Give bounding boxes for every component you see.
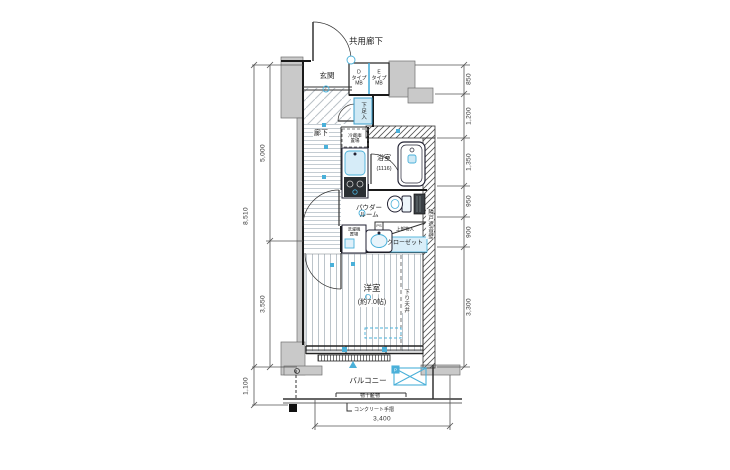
meter-box [349, 63, 389, 95]
bathtub [398, 142, 425, 186]
washing-machine-space [342, 225, 366, 253]
washbasin [366, 230, 392, 252]
toilet [388, 196, 412, 212]
shoe-box [354, 98, 372, 124]
fridge-space [342, 129, 368, 147]
pipe-space-box [414, 194, 425, 214]
floor-plan-drawing [0, 0, 730, 470]
kitchen-unit [342, 148, 368, 198]
floor-plan: 共用廊下 玄関 D タイプ MB E タイプ MB 下足入 廊下 冷蔵庫 置場 … [0, 0, 730, 470]
